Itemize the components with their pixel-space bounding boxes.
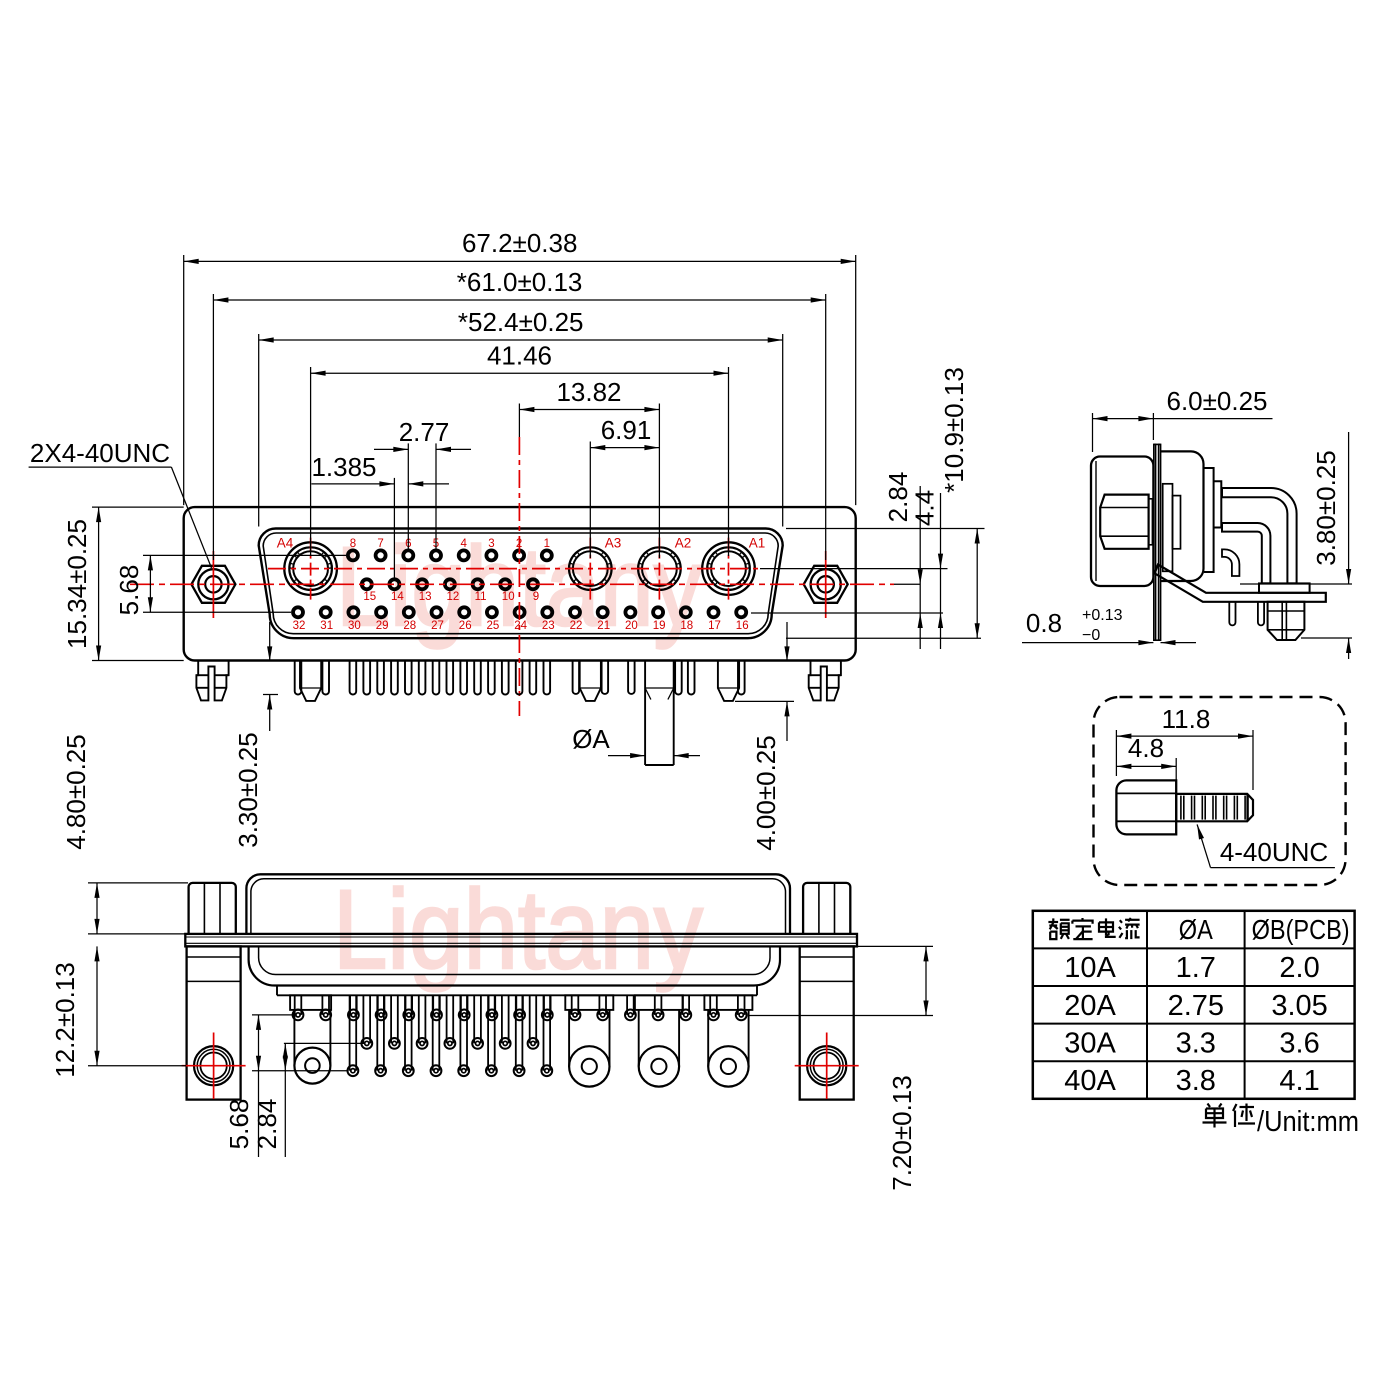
svg-text:0.8: 0.8: [1026, 608, 1062, 638]
svg-text:2.84: 2.84: [883, 472, 913, 523]
svg-text:2.75: 2.75: [1168, 990, 1224, 1022]
svg-text:3.3: 3.3: [1176, 1027, 1216, 1059]
svg-text:30: 30: [348, 620, 361, 632]
svg-text:3.30±0.25: 3.30±0.25: [233, 732, 263, 847]
svg-text:31: 31: [320, 620, 333, 632]
svg-text:2: 2: [516, 538, 522, 550]
svg-text:26: 26: [459, 620, 472, 632]
svg-text:1.7: 1.7: [1176, 952, 1216, 984]
svg-text:1: 1: [544, 538, 550, 550]
svg-text:10A: 10A: [1064, 952, 1116, 984]
svg-text:41.46: 41.46: [487, 341, 552, 371]
svg-text:A4: A4: [277, 536, 294, 551]
svg-text:40A: 40A: [1064, 1065, 1116, 1097]
svg-text:21: 21: [597, 620, 610, 632]
svg-text:Lightany: Lightany: [333, 867, 703, 992]
svg-text:2.77: 2.77: [399, 417, 450, 447]
svg-text:23: 23: [542, 620, 555, 632]
svg-text:67.2±0.38: 67.2±0.38: [462, 228, 577, 258]
svg-text:13.82: 13.82: [556, 377, 621, 407]
svg-text:3.80±0.25: 3.80±0.25: [1311, 450, 1341, 565]
svg-text:5.68: 5.68: [114, 565, 144, 616]
svg-text:29: 29: [376, 620, 389, 632]
svg-text:+0.13: +0.13: [1082, 607, 1123, 624]
svg-text:11: 11: [475, 591, 487, 603]
svg-text:3: 3: [488, 538, 494, 550]
svg-text:3.8: 3.8: [1176, 1065, 1216, 1097]
svg-text:2X4-40UNC: 2X4-40UNC: [30, 438, 170, 468]
svg-text:1.385: 1.385: [311, 452, 376, 482]
svg-text:ØA: ØA: [572, 724, 610, 754]
svg-text:19: 19: [653, 620, 666, 632]
svg-text:ØA: ØA: [1179, 914, 1213, 945]
svg-text:7: 7: [377, 538, 383, 550]
svg-text:4.8: 4.8: [1128, 733, 1164, 763]
svg-text:27: 27: [431, 620, 444, 632]
svg-text:4.4: 4.4: [910, 490, 940, 526]
svg-text:10: 10: [502, 591, 515, 603]
svg-text:30A: 30A: [1064, 1027, 1116, 1059]
svg-text:3.6: 3.6: [1279, 1027, 1319, 1059]
svg-text:*52.4±0.25: *52.4±0.25: [458, 307, 584, 337]
svg-text:9: 9: [533, 591, 539, 603]
svg-text:8: 8: [350, 538, 356, 550]
svg-text:4: 4: [460, 538, 467, 550]
svg-text:6.0±0.25: 6.0±0.25: [1166, 386, 1267, 416]
svg-text:24: 24: [514, 620, 527, 632]
svg-text:20A: 20A: [1064, 990, 1116, 1022]
svg-text:28: 28: [403, 620, 416, 632]
svg-text:2.84: 2.84: [252, 1099, 282, 1150]
svg-text:15.34±0.25: 15.34±0.25: [62, 519, 92, 649]
svg-text:4-40UNC: 4-40UNC: [1220, 837, 1328, 867]
svg-text:6.91: 6.91: [601, 415, 652, 445]
svg-text:A2: A2: [675, 536, 692, 551]
svg-text:ØB(PCB): ØB(PCB): [1252, 914, 1350, 945]
svg-text:/Unit:mm: /Unit:mm: [1257, 1106, 1359, 1138]
svg-text:7.20±0.13: 7.20±0.13: [887, 1075, 917, 1190]
svg-text:18: 18: [680, 620, 693, 632]
svg-text:4.00±0.25: 4.00±0.25: [751, 735, 781, 850]
svg-text:−0: −0: [1082, 627, 1100, 644]
svg-text:12: 12: [447, 591, 460, 603]
svg-text:5.68: 5.68: [224, 1099, 254, 1150]
svg-text:A1: A1: [749, 536, 766, 551]
svg-text:3.05: 3.05: [1271, 990, 1327, 1022]
svg-text:15: 15: [363, 591, 376, 603]
svg-text:A3: A3: [605, 536, 622, 551]
svg-text:20: 20: [625, 620, 638, 632]
svg-text:16: 16: [736, 620, 749, 632]
svg-text:2.0: 2.0: [1279, 952, 1319, 984]
svg-text:*10.9±0.13: *10.9±0.13: [939, 367, 969, 493]
svg-text:22: 22: [570, 620, 583, 632]
svg-text:14: 14: [391, 591, 404, 603]
svg-text:4.80±0.25: 4.80±0.25: [61, 734, 91, 849]
svg-text:17: 17: [708, 620, 721, 632]
svg-text:25: 25: [487, 620, 500, 632]
svg-text:32: 32: [293, 620, 306, 632]
svg-text:12.2±0.13: 12.2±0.13: [50, 962, 80, 1077]
svg-text:11.8: 11.8: [1162, 704, 1211, 734]
svg-text:13: 13: [419, 591, 432, 603]
svg-text:4.1: 4.1: [1279, 1065, 1319, 1097]
svg-text:*61.0±0.13: *61.0±0.13: [457, 267, 583, 297]
